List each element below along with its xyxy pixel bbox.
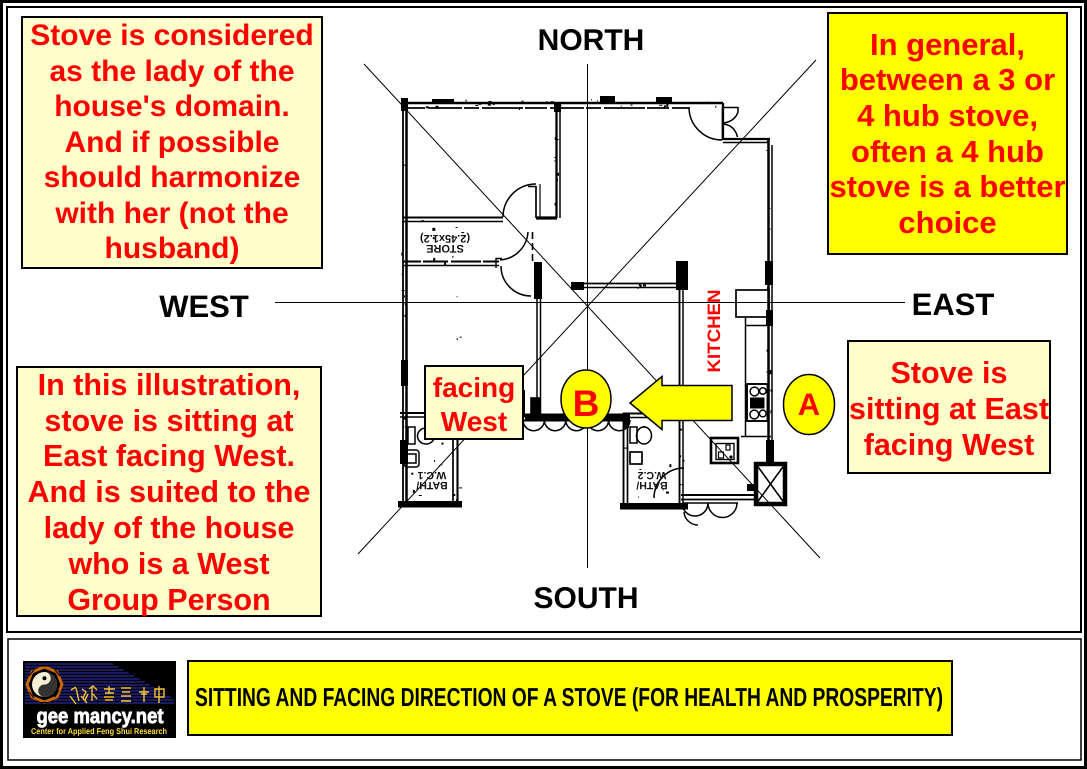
- svg-text:SOUTH: SOUTH: [534, 582, 639, 615]
- svg-text:BATH/W.C.2: BATH/W.C.2: [636, 469, 667, 491]
- svg-text:BATH/W.C.1: BATH/W.C.1: [416, 469, 447, 491]
- svg-text:KITCHEN: KITCHEN: [704, 290, 724, 373]
- svg-text:NORTH: NORTH: [538, 24, 645, 57]
- svg-text:WEST: WEST: [159, 289, 249, 324]
- svg-text:SITTING AND FACING DIRECTION O: SITTING AND FACING DIRECTION OF A STOVE …: [195, 682, 943, 712]
- svg-text:B: B: [573, 383, 600, 424]
- svg-text:STORE(2.45x1.2): STORE(2.45x1.2): [420, 232, 470, 254]
- svg-text:Center for Applied Feng Shui R: Center for Applied Feng Shui Research: [31, 726, 167, 736]
- svg-text:EAST: EAST: [912, 287, 995, 322]
- svg-text:A: A: [798, 387, 820, 422]
- svg-text:gee mancy.net: gee mancy.net: [37, 705, 164, 728]
